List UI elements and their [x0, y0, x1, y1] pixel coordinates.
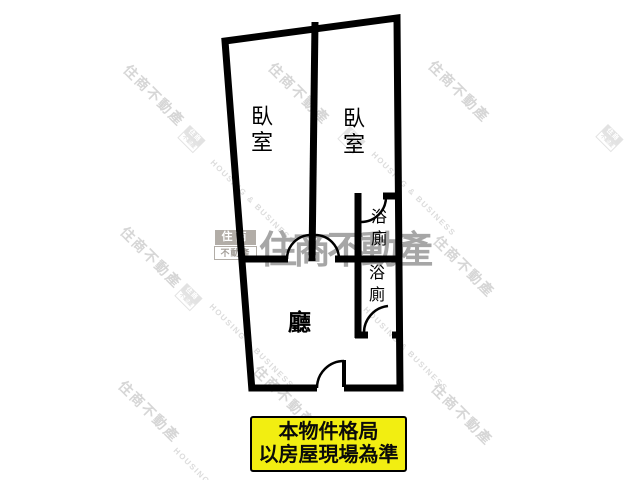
label-bedroom-left: 臥室	[251, 104, 273, 157]
label-bath-upper: 浴廁	[371, 207, 387, 250]
label-bedroom-right: 臥室	[343, 106, 365, 159]
floorplan-image: 住商不動產住商不動產住商不動產住商不動產住商不動產住商不動產住商不動產住商不動產…	[0, 0, 640, 480]
bedroom-divider-wall	[312, 22, 315, 261]
door-arc-entrance	[317, 361, 344, 388]
floorplan-drawing	[0, 0, 640, 480]
door-arc-bath-lower	[364, 306, 388, 334]
door-arc-bedroom-left	[287, 235, 311, 259]
label-bath-lower: 浴廁	[369, 263, 385, 306]
disclaimer-line1: 本物件格局	[252, 421, 405, 444]
disclaimer-line2: 以房屋現場為準	[252, 444, 405, 467]
disclaimer-box: 本物件格局 以房屋現場為準	[250, 416, 407, 472]
door-arc-bedroom-right	[315, 235, 339, 259]
label-living-room: 廳	[288, 309, 311, 337]
